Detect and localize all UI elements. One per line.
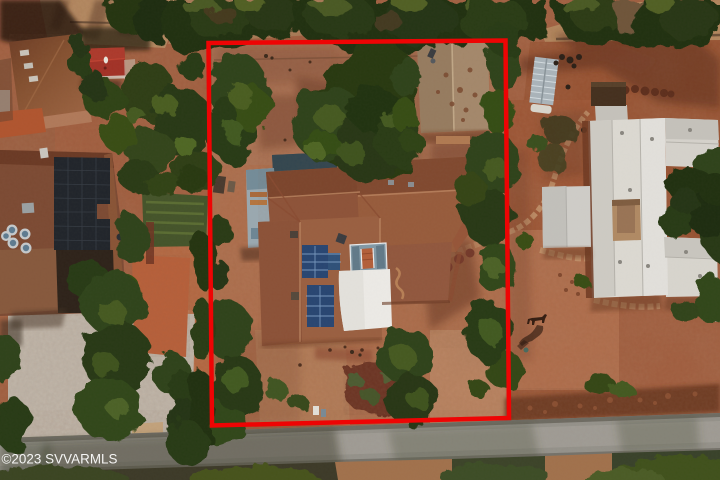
svg-text:©2023 SVVARMLS: ©2023 SVVARMLS <box>2 452 118 467</box>
